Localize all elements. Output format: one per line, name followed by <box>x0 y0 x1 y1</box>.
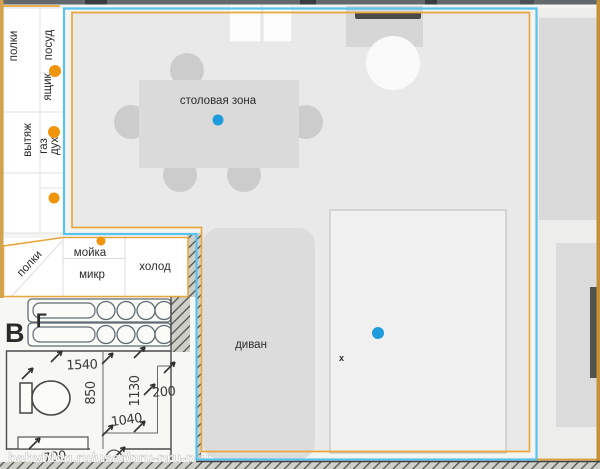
marker-dot-blue-dining[interactable] <box>213 115 224 126</box>
cabinet-dishes-label: посуд <box>43 29 55 60</box>
dim-850: 850 <box>84 381 99 405</box>
marker-dot-orange-lower[interactable] <box>49 193 60 204</box>
x-mark[interactable]: x <box>339 353 344 363</box>
top-wall-segment <box>300 0 316 5</box>
dining-zone-label: столовая зона <box>180 95 257 107</box>
window <box>263 4 292 42</box>
wardrobe <box>539 18 597 220</box>
top-wall-segment <box>425 0 437 5</box>
toilet <box>20 381 70 415</box>
bath-shelf <box>18 437 88 449</box>
round-chair <box>366 36 420 90</box>
cabinet-oven-label: дух <box>49 137 61 155</box>
floor-plan-canvas: столовая зона диван x <box>0 0 600 469</box>
floor-plan-svg: столовая зона диван x <box>0 0 600 469</box>
bathroom-shelf-unit <box>28 299 173 346</box>
cabinet-hood-label: вытяж <box>22 123 34 157</box>
marker-dot-blue-zone[interactable] <box>372 327 384 339</box>
cabinet-drawer-label: ящик <box>42 72 54 100</box>
dim-1540: 1540 <box>66 357 98 373</box>
counter-fridge-label: холод <box>139 261 171 273</box>
window <box>229 4 261 42</box>
left-wall <box>0 0 4 298</box>
top-wall-segment <box>85 0 107 5</box>
marker-dot-orange-dishes[interactable] <box>49 65 61 77</box>
marker-dot-orange-gas[interactable] <box>48 126 60 138</box>
bottom-wall-hatched <box>0 462 600 469</box>
right-wall <box>597 0 600 469</box>
dim-1130: 1130 <box>128 375 143 406</box>
cabinet-shelves-label: полки <box>8 31 20 62</box>
counter-microwave-label: микр <box>79 269 105 281</box>
point-label-v: В <box>5 318 25 348</box>
counter-sink-label: мойка <box>74 247 107 259</box>
marker-dot-orange-sink[interactable] <box>97 237 106 246</box>
dim-200: 200 <box>152 384 177 401</box>
kitchen-counter-block: полки мойка микр холод <box>4 238 189 297</box>
sofa-label: диван <box>235 339 267 351</box>
zone-rectangle <box>330 210 506 453</box>
bathroom-wall-hatched <box>171 297 190 352</box>
top-wall-segment <box>520 0 534 5</box>
point-label-g: Г <box>36 311 47 332</box>
